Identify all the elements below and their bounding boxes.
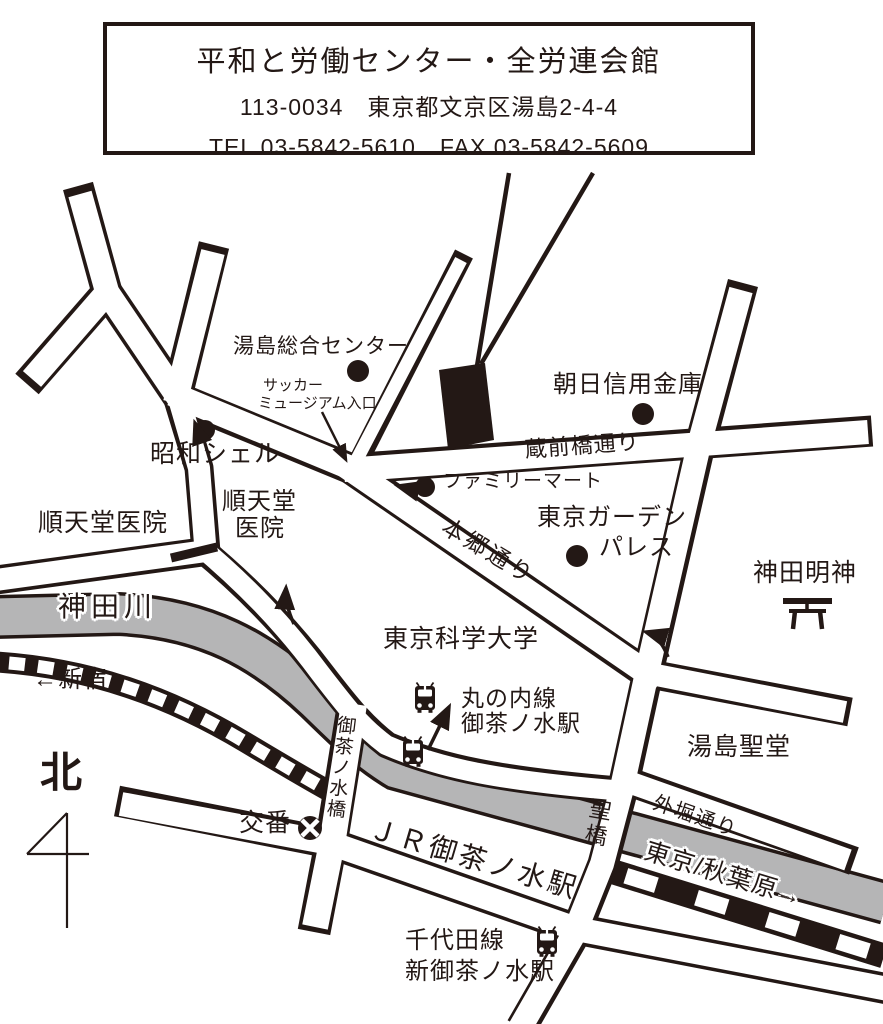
label-marunouchi-2: 御茶ノ水駅 bbox=[461, 711, 581, 736]
label-koban: 交番 bbox=[239, 810, 291, 837]
label-asahi-bank: 朝日信用金庫 bbox=[553, 372, 703, 398]
north-compass-icon bbox=[27, 813, 89, 928]
header-box: 平和と労働センター・全労連会館 113-0034 東京都文京区湯島2-4-4 T… bbox=[103, 22, 755, 155]
road-building-spur bbox=[356, 260, 461, 461]
label-chiyoda-2: 新御茶ノ水駅 bbox=[405, 959, 555, 985]
label-soccer-museum-1: サッカー bbox=[263, 378, 323, 394]
label-chiyoda-1: 千代田線 bbox=[405, 928, 505, 954]
callout-line-right bbox=[481, 173, 593, 364]
marunouchi-arrow bbox=[428, 707, 449, 750]
label-tokyo-garden-2: パレス bbox=[599, 535, 674, 561]
label-tokyo-kagaku-univ: 東京科学大学 bbox=[383, 626, 539, 653]
poi-dot-asahi-bank bbox=[632, 403, 654, 425]
label-kanda-river: 神田川 bbox=[58, 592, 157, 622]
train-icon-marunouchi bbox=[415, 683, 435, 713]
label-kanda-myojin: 神田明神 bbox=[753, 560, 857, 587]
label-yushima-seido: 湯島聖堂 bbox=[687, 734, 791, 761]
label-showa-shell: 昭和シェル bbox=[150, 441, 280, 468]
koban-icon bbox=[298, 816, 322, 840]
label-north: 北 bbox=[40, 750, 83, 795]
building-phone: TEL 03-5842-5610 FAX 03-5842-5609 bbox=[107, 128, 751, 162]
label-yushima-center: 湯島総合センター bbox=[233, 336, 409, 359]
destination-building bbox=[439, 363, 494, 449]
label-juntendo-right-2: 医院 bbox=[235, 516, 285, 542]
label-to-shinjuku: ←新宿 bbox=[33, 667, 108, 693]
building-title: 平和と労働センター・全労連会館 bbox=[107, 38, 751, 80]
callout-line-left bbox=[477, 173, 509, 366]
train-icon-marunouchi-2 bbox=[403, 737, 423, 767]
poi-dot-familymart bbox=[415, 477, 435, 497]
access-map: 平和と労働センター・全労連会館 113-0034 東京都文京区湯島2-4-4 T… bbox=[0, 0, 883, 1024]
label-soccer-museum-2: ミュージアム入口 bbox=[258, 396, 377, 412]
road-north-branch bbox=[80, 194, 108, 295]
poi-dot-yushima-center bbox=[347, 360, 369, 382]
label-tokyo-garden-1: 東京ガーデン bbox=[537, 505, 687, 531]
building-address: 113-0034 東京都文京区湯島2-4-4 bbox=[107, 88, 751, 122]
label-juntendo-right-1: 順天堂 bbox=[222, 489, 297, 515]
callout-lines bbox=[477, 173, 593, 366]
label-juntendo-left: 順天堂医院 bbox=[38, 510, 168, 537]
shrine-torii-icon bbox=[783, 601, 832, 629]
poi-dot-tokyo-garden bbox=[566, 545, 588, 567]
label-marunouchi-1: 丸の内線 bbox=[461, 686, 557, 711]
train-icon-chiyoda bbox=[537, 927, 557, 957]
label-familymart: ファミリーマート bbox=[443, 472, 603, 493]
